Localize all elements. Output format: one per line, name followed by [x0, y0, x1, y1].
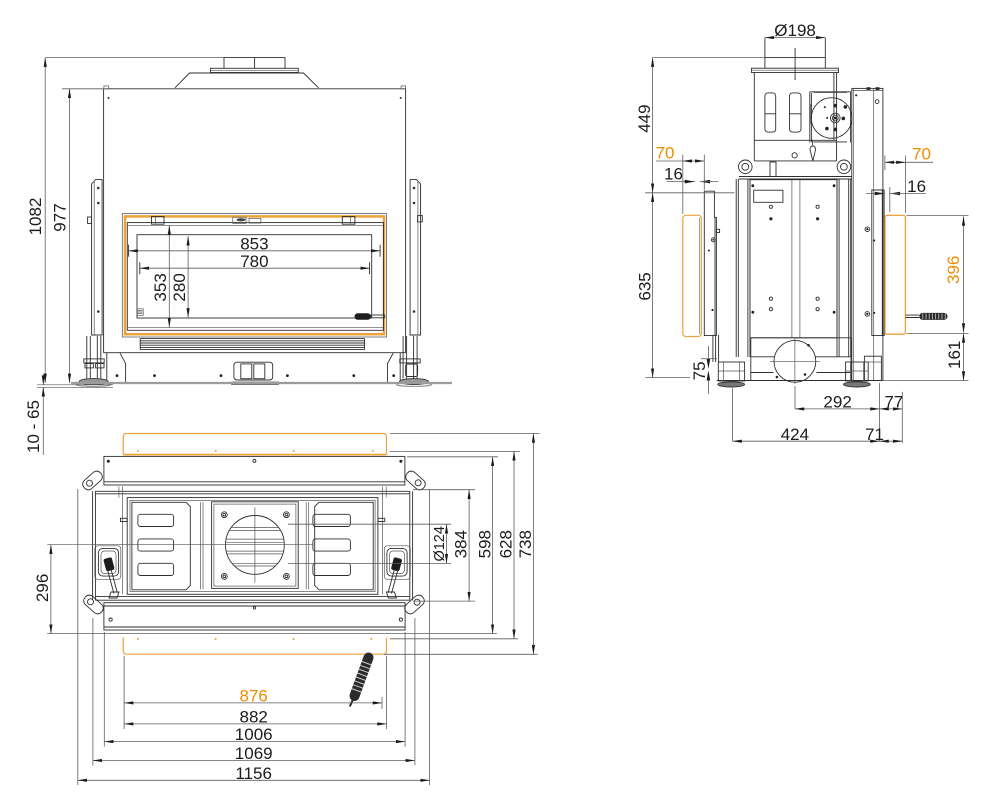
svg-text:280: 280 — [170, 273, 189, 301]
svg-text:70: 70 — [656, 144, 675, 163]
svg-text:75: 75 — [690, 361, 709, 380]
svg-text:853: 853 — [240, 235, 268, 254]
svg-text:70: 70 — [912, 145, 931, 164]
svg-text:977: 977 — [50, 203, 69, 231]
svg-text:161: 161 — [945, 341, 964, 369]
svg-text:1156: 1156 — [235, 764, 272, 783]
svg-text:396: 396 — [944, 256, 963, 284]
svg-text:1006: 1006 — [235, 725, 273, 744]
svg-text:292: 292 — [823, 393, 851, 412]
svg-text:384: 384 — [451, 530, 470, 558]
svg-text:353: 353 — [151, 273, 170, 301]
svg-text:876: 876 — [240, 687, 268, 706]
svg-text:628: 628 — [497, 530, 516, 558]
svg-text:449: 449 — [635, 104, 654, 132]
svg-text:16: 16 — [664, 165, 683, 184]
svg-text:598: 598 — [475, 530, 494, 558]
svg-text:71: 71 — [865, 425, 884, 444]
svg-text:296: 296 — [33, 574, 52, 602]
svg-text:882: 882 — [240, 708, 268, 727]
svg-text:10 - 65: 10 - 65 — [24, 400, 43, 453]
svg-text:424: 424 — [781, 425, 809, 444]
svg-text:Ø124: Ø124 — [432, 526, 448, 561]
svg-text:77: 77 — [884, 393, 903, 412]
svg-text:1069: 1069 — [235, 744, 273, 763]
svg-text:738: 738 — [516, 530, 535, 558]
svg-text:780: 780 — [240, 252, 268, 271]
svg-text:635: 635 — [635, 272, 654, 300]
svg-text:1082: 1082 — [26, 198, 45, 236]
svg-text:Ø198: Ø198 — [774, 21, 816, 40]
